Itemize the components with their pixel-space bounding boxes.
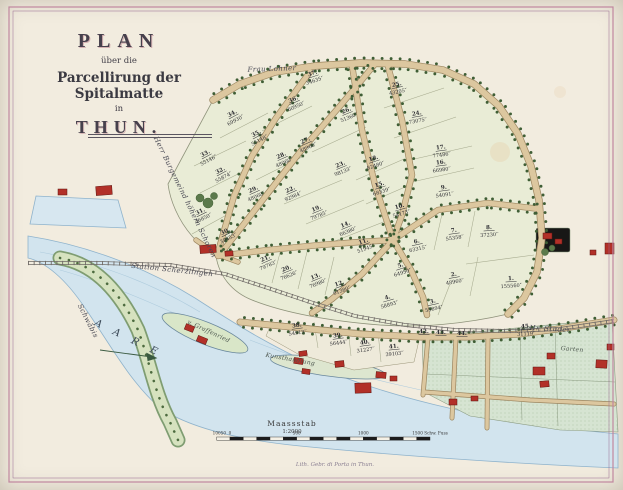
tree-dot bbox=[491, 339, 494, 342]
tree-dot bbox=[252, 317, 255, 320]
tree-dot bbox=[394, 252, 397, 255]
tree-dot bbox=[472, 89, 475, 92]
tree-dot bbox=[348, 327, 351, 330]
tree-dot bbox=[230, 189, 233, 192]
svg-text:42.: 42. bbox=[419, 329, 429, 335]
tree-dot bbox=[527, 202, 530, 205]
building bbox=[302, 368, 311, 374]
tree-dot bbox=[276, 123, 279, 126]
building bbox=[547, 353, 555, 359]
tree-dot bbox=[532, 258, 535, 261]
tree-dot bbox=[593, 317, 596, 320]
tree-dot bbox=[340, 296, 343, 299]
tree-dot bbox=[543, 202, 546, 205]
title-block: PLAN über die Parcellirung der Spitalmat… bbox=[38, 30, 200, 138]
tree-dot bbox=[352, 104, 355, 107]
scale-segment bbox=[310, 437, 323, 440]
tree-dot bbox=[479, 81, 482, 84]
tree-dot bbox=[332, 247, 335, 250]
tree-dot bbox=[327, 111, 330, 114]
tree-dot bbox=[492, 107, 495, 110]
tree-dot bbox=[426, 61, 429, 64]
tree-dot bbox=[279, 183, 282, 186]
tree-dot bbox=[237, 173, 240, 176]
tree-dot bbox=[356, 337, 359, 340]
tree-dot bbox=[233, 92, 236, 95]
tree-dot bbox=[534, 221, 537, 224]
building bbox=[449, 399, 457, 405]
building bbox=[543, 233, 552, 239]
tree-dot bbox=[361, 71, 364, 74]
tree-dot bbox=[517, 210, 520, 213]
tree-dot bbox=[228, 194, 231, 197]
tree-dot bbox=[362, 84, 365, 87]
tree-dot bbox=[238, 247, 241, 250]
tree-dot bbox=[322, 130, 325, 133]
tree-dot bbox=[490, 207, 493, 210]
tree-dot bbox=[328, 123, 331, 126]
tree-dot bbox=[383, 70, 386, 73]
tree-dot bbox=[279, 320, 282, 323]
tree-dot bbox=[440, 203, 443, 206]
tree-dot bbox=[499, 208, 502, 211]
tree-dot bbox=[407, 68, 410, 71]
tree-dot bbox=[367, 258, 370, 261]
tree-dot bbox=[341, 246, 344, 249]
tree-dot bbox=[516, 296, 519, 299]
tree-dot bbox=[354, 284, 357, 287]
tree-dot bbox=[261, 318, 264, 321]
tree-dot bbox=[257, 154, 260, 157]
tree-dot bbox=[399, 57, 402, 60]
tree-dot bbox=[374, 265, 377, 268]
building bbox=[225, 251, 233, 257]
scale-segment bbox=[403, 437, 416, 440]
tree-dot bbox=[394, 76, 397, 79]
tree-dot bbox=[595, 326, 598, 329]
tree-dot bbox=[372, 57, 375, 60]
tree-dot bbox=[435, 215, 438, 218]
tree-dot bbox=[270, 319, 273, 322]
tree-dot bbox=[530, 187, 533, 190]
tree-dot bbox=[358, 236, 361, 239]
tree-dot bbox=[416, 70, 419, 73]
scale-segment bbox=[243, 437, 256, 440]
tree-dot bbox=[238, 193, 241, 196]
tree-dot bbox=[251, 327, 254, 330]
tree-dot bbox=[534, 284, 537, 287]
tree-dot bbox=[288, 242, 291, 245]
tree-dot bbox=[279, 103, 282, 106]
tree-dot bbox=[414, 166, 417, 169]
tree-dot bbox=[389, 339, 392, 342]
tree-dot bbox=[513, 138, 516, 141]
tree-dot bbox=[550, 333, 553, 336]
tree-dot bbox=[468, 209, 471, 212]
tree-dot bbox=[420, 225, 423, 228]
tree-dot bbox=[535, 240, 538, 243]
tree-dot bbox=[256, 245, 259, 248]
tree-dot bbox=[402, 247, 405, 250]
tree-dot bbox=[385, 238, 388, 241]
tree-dot bbox=[468, 86, 471, 89]
tree-dot bbox=[399, 330, 402, 333]
tree-dot bbox=[269, 328, 272, 331]
svg-text:44.: 44. bbox=[457, 331, 467, 337]
tree-dot bbox=[532, 196, 535, 199]
tree-dot bbox=[243, 229, 246, 232]
tree-dot bbox=[414, 179, 417, 182]
tree-dot bbox=[541, 334, 544, 337]
tree-dot bbox=[412, 187, 415, 190]
tree-dot bbox=[249, 74, 252, 77]
tree-dot bbox=[380, 258, 383, 261]
tree-dot bbox=[317, 59, 320, 62]
tree-dot bbox=[397, 236, 400, 239]
tree-dot bbox=[350, 98, 353, 101]
building bbox=[390, 376, 397, 381]
tree-dot bbox=[405, 235, 408, 238]
tree-dot bbox=[430, 208, 433, 211]
tree-dot bbox=[530, 151, 533, 154]
tree-dot bbox=[261, 146, 264, 149]
tree-dot bbox=[501, 118, 504, 121]
tree-dot bbox=[303, 86, 306, 89]
title-parcellirung: Parcellirung der Spitalmatte bbox=[38, 70, 200, 102]
tree-dot bbox=[348, 77, 351, 80]
scale-segment bbox=[217, 437, 230, 440]
tree-dot bbox=[247, 246, 250, 249]
tree-dot bbox=[353, 57, 356, 60]
tree-dot bbox=[393, 229, 396, 232]
tree-dot bbox=[604, 325, 607, 328]
tree-dot bbox=[316, 137, 319, 140]
tree-dot bbox=[348, 277, 351, 280]
tree-dot bbox=[542, 194, 545, 197]
tree-dot bbox=[220, 88, 223, 91]
tree-dot bbox=[500, 198, 503, 201]
tree-dot bbox=[232, 213, 235, 216]
tree-dot bbox=[331, 238, 334, 241]
tree-dot bbox=[441, 213, 444, 216]
tree-dot bbox=[229, 222, 232, 225]
building bbox=[596, 360, 607, 369]
tree-dot bbox=[297, 241, 300, 244]
tree-dot bbox=[385, 203, 388, 206]
tree-dot bbox=[447, 66, 450, 69]
tree-dot bbox=[514, 120, 517, 123]
tree-dot bbox=[344, 57, 347, 60]
tree-dot bbox=[525, 280, 528, 283]
tree-dot bbox=[420, 309, 423, 312]
tree-dot bbox=[242, 216, 245, 219]
tree-dot bbox=[288, 321, 291, 324]
tree-dot bbox=[271, 131, 274, 134]
tree-dot bbox=[537, 176, 540, 179]
tree-dot bbox=[526, 143, 529, 146]
tree-dot bbox=[376, 175, 379, 178]
tree-dot bbox=[389, 234, 392, 237]
tree-dot bbox=[392, 104, 395, 107]
tree-dot bbox=[355, 272, 358, 275]
tree-dot bbox=[253, 160, 256, 163]
tree-dot bbox=[232, 243, 235, 246]
tree-dot bbox=[455, 69, 458, 72]
tree-dot bbox=[379, 214, 382, 217]
tree-dot bbox=[376, 206, 379, 209]
tree-dot bbox=[289, 251, 292, 254]
tree-dot bbox=[367, 177, 370, 180]
svg-text:37230°′: 37230°′ bbox=[480, 231, 499, 239]
tree-dot bbox=[339, 326, 342, 329]
tree-dot bbox=[531, 266, 534, 269]
tree-dot bbox=[249, 222, 252, 225]
building bbox=[555, 239, 562, 244]
tree-dot bbox=[270, 244, 273, 247]
tree-dot bbox=[477, 208, 480, 211]
tree-dot bbox=[523, 134, 526, 137]
scale-segment bbox=[363, 437, 376, 440]
tree-dot bbox=[385, 78, 388, 81]
tree-dot bbox=[243, 316, 246, 319]
lithographer-imprint: Lith. Gebr. di Porta in Thun. bbox=[270, 462, 400, 468]
tree-dot bbox=[419, 279, 422, 282]
tree-dot bbox=[239, 256, 242, 259]
tree-dot bbox=[450, 211, 453, 214]
tree-dot bbox=[394, 113, 397, 116]
tree-dot bbox=[536, 203, 539, 206]
tree-dot bbox=[296, 72, 299, 75]
building bbox=[335, 361, 345, 368]
tree-dot bbox=[371, 67, 374, 70]
tree-dot bbox=[212, 92, 215, 95]
tree-dot bbox=[407, 255, 410, 258]
tree-dot bbox=[380, 338, 383, 341]
tree-dot bbox=[362, 67, 365, 70]
tree-dot bbox=[221, 259, 224, 262]
tree-dot bbox=[427, 220, 430, 223]
tree-dot bbox=[511, 316, 514, 319]
tree-dot bbox=[464, 73, 467, 76]
tree-dot bbox=[226, 202, 229, 205]
title-ueber-die: über die bbox=[38, 56, 200, 66]
tree-dot bbox=[366, 131, 369, 134]
scale-segment bbox=[297, 437, 310, 440]
scale-caption-text: Maassstab bbox=[252, 419, 332, 428]
tree-dot bbox=[298, 145, 301, 148]
tree-dot bbox=[432, 340, 435, 343]
tree-dot bbox=[405, 168, 408, 171]
tree-dot bbox=[567, 321, 570, 324]
tree-dot bbox=[373, 70, 376, 73]
tree-dot bbox=[411, 148, 414, 151]
tree-dot bbox=[491, 197, 494, 200]
tree-dot bbox=[518, 201, 521, 204]
tree-dot bbox=[260, 208, 263, 211]
tree-dot bbox=[366, 64, 369, 67]
tree-dot bbox=[533, 159, 536, 162]
tree-dot bbox=[484, 197, 487, 200]
tree-dot bbox=[225, 96, 228, 99]
tree-dot bbox=[500, 339, 503, 342]
tree-dot bbox=[368, 140, 371, 143]
scale-segment bbox=[283, 437, 296, 440]
tree-dot bbox=[586, 328, 589, 331]
tree-dot bbox=[459, 210, 462, 213]
tree-dot bbox=[400, 141, 403, 144]
scale-tick-label: 50 bbox=[221, 431, 227, 436]
tree-dot bbox=[322, 239, 325, 242]
tree-dot bbox=[432, 331, 435, 334]
tree-dot bbox=[263, 204, 266, 207]
scale-segment bbox=[230, 437, 243, 440]
tree-dot bbox=[404, 219, 407, 222]
tree-dot bbox=[356, 91, 359, 94]
tree-dot bbox=[361, 265, 364, 268]
tree-dot bbox=[266, 184, 269, 187]
tree-dot bbox=[384, 232, 387, 235]
svg-text:31119°′: 31119°′ bbox=[517, 331, 536, 338]
building bbox=[376, 372, 386, 379]
tree-dot bbox=[359, 142, 362, 145]
tree-dot bbox=[329, 334, 332, 337]
tree-dot bbox=[220, 250, 223, 253]
tree-dot bbox=[228, 83, 231, 86]
tree-dot bbox=[330, 325, 333, 328]
tree-dot bbox=[284, 96, 287, 99]
tree-dot bbox=[349, 86, 352, 89]
tree-dot bbox=[270, 77, 273, 80]
tree-dot bbox=[310, 306, 313, 309]
parcel-label: 43. bbox=[436, 330, 447, 336]
svg-text:43.: 43. bbox=[436, 330, 446, 336]
tree-dot bbox=[492, 93, 495, 96]
tree-dot bbox=[294, 149, 297, 152]
tree-dot bbox=[423, 340, 426, 343]
tree-dot bbox=[268, 197, 271, 200]
tree-dot bbox=[321, 324, 324, 327]
tree-dot bbox=[327, 69, 330, 72]
map-sheet: 10050050010001500 Schw. Fuss Frau Lohner… bbox=[0, 0, 623, 490]
parcel-label: 42. bbox=[419, 329, 430, 335]
tree-dot bbox=[486, 101, 489, 104]
tree-dot bbox=[506, 126, 509, 129]
tree-dot bbox=[281, 116, 284, 119]
tree-dot bbox=[545, 241, 548, 244]
title-rule bbox=[88, 134, 212, 138]
tree-dot bbox=[533, 203, 536, 206]
tree-dot bbox=[315, 124, 318, 127]
tree-dot bbox=[221, 219, 224, 222]
tree-dot bbox=[357, 76, 360, 79]
tree-dot bbox=[519, 127, 522, 130]
tree-dot bbox=[380, 235, 383, 238]
scale-segment bbox=[417, 437, 430, 440]
building bbox=[355, 383, 371, 394]
tree-dot bbox=[392, 233, 395, 236]
tree-dot bbox=[540, 185, 543, 188]
tree-dot bbox=[361, 151, 364, 154]
tree-dot bbox=[241, 76, 244, 79]
tree-dot bbox=[479, 95, 482, 98]
tree-dot bbox=[388, 87, 391, 90]
tree-dot bbox=[392, 245, 395, 248]
tree-dot bbox=[408, 330, 411, 333]
tree-dot bbox=[414, 291, 417, 294]
tree-dot bbox=[265, 244, 268, 247]
tree-dot bbox=[303, 322, 306, 325]
tree-dot bbox=[295, 81, 298, 84]
tree-dot bbox=[398, 339, 401, 342]
tree-dot bbox=[349, 237, 352, 240]
title-in: in bbox=[38, 104, 200, 114]
scale-ratio: 1:2000 bbox=[252, 429, 332, 435]
tree-dot bbox=[254, 215, 257, 218]
tree-dot bbox=[356, 67, 359, 70]
tree-dot bbox=[381, 57, 384, 60]
tree-dot bbox=[234, 205, 237, 208]
tree-dot bbox=[381, 244, 384, 247]
tree-dot bbox=[508, 209, 511, 212]
tree-dot bbox=[412, 230, 415, 233]
tree-dot bbox=[325, 296, 328, 299]
tree-dot bbox=[503, 309, 506, 312]
tree-dot bbox=[417, 60, 420, 63]
tree-dot bbox=[535, 167, 538, 170]
tree-dot bbox=[534, 249, 537, 252]
tree-dot bbox=[397, 123, 400, 126]
tree-dot bbox=[577, 329, 580, 332]
tree-dot bbox=[402, 150, 405, 153]
tree-dot bbox=[473, 340, 476, 343]
scale-segment bbox=[390, 437, 403, 440]
tree-dot bbox=[310, 131, 313, 134]
tree-dot bbox=[418, 300, 421, 303]
scale-caption: Maassstab 1:2000 bbox=[252, 419, 332, 435]
tree-dot bbox=[230, 258, 233, 261]
tree-dot bbox=[338, 99, 341, 102]
tree-dot bbox=[459, 340, 462, 343]
tree-dot bbox=[468, 340, 471, 343]
tree-dot bbox=[306, 240, 309, 243]
tree-dot bbox=[400, 228, 403, 231]
tree-dot bbox=[388, 212, 391, 215]
tree-dot bbox=[253, 83, 256, 86]
tree-dot bbox=[486, 87, 489, 90]
tree-dot bbox=[268, 118, 271, 121]
tree-dot bbox=[274, 190, 277, 193]
tree-dot bbox=[289, 89, 292, 92]
tree-dot bbox=[246, 176, 249, 179]
tree-dot bbox=[401, 102, 404, 105]
tree-dot bbox=[449, 202, 452, 205]
building bbox=[533, 367, 545, 375]
tree-dot bbox=[410, 196, 413, 199]
tree-dot bbox=[368, 77, 371, 80]
tree-dot bbox=[602, 315, 605, 318]
tree-dot bbox=[277, 170, 280, 173]
tree-dot bbox=[443, 75, 446, 78]
harbor-basin bbox=[30, 196, 126, 228]
tree-dot bbox=[433, 72, 436, 75]
tree-dot bbox=[361, 102, 364, 105]
tree-dot bbox=[415, 218, 418, 221]
tree-dot bbox=[458, 201, 461, 204]
tree-dot bbox=[407, 340, 410, 343]
tree-dot bbox=[509, 200, 512, 203]
tree-dot bbox=[517, 309, 520, 312]
tree-dot bbox=[355, 122, 358, 125]
